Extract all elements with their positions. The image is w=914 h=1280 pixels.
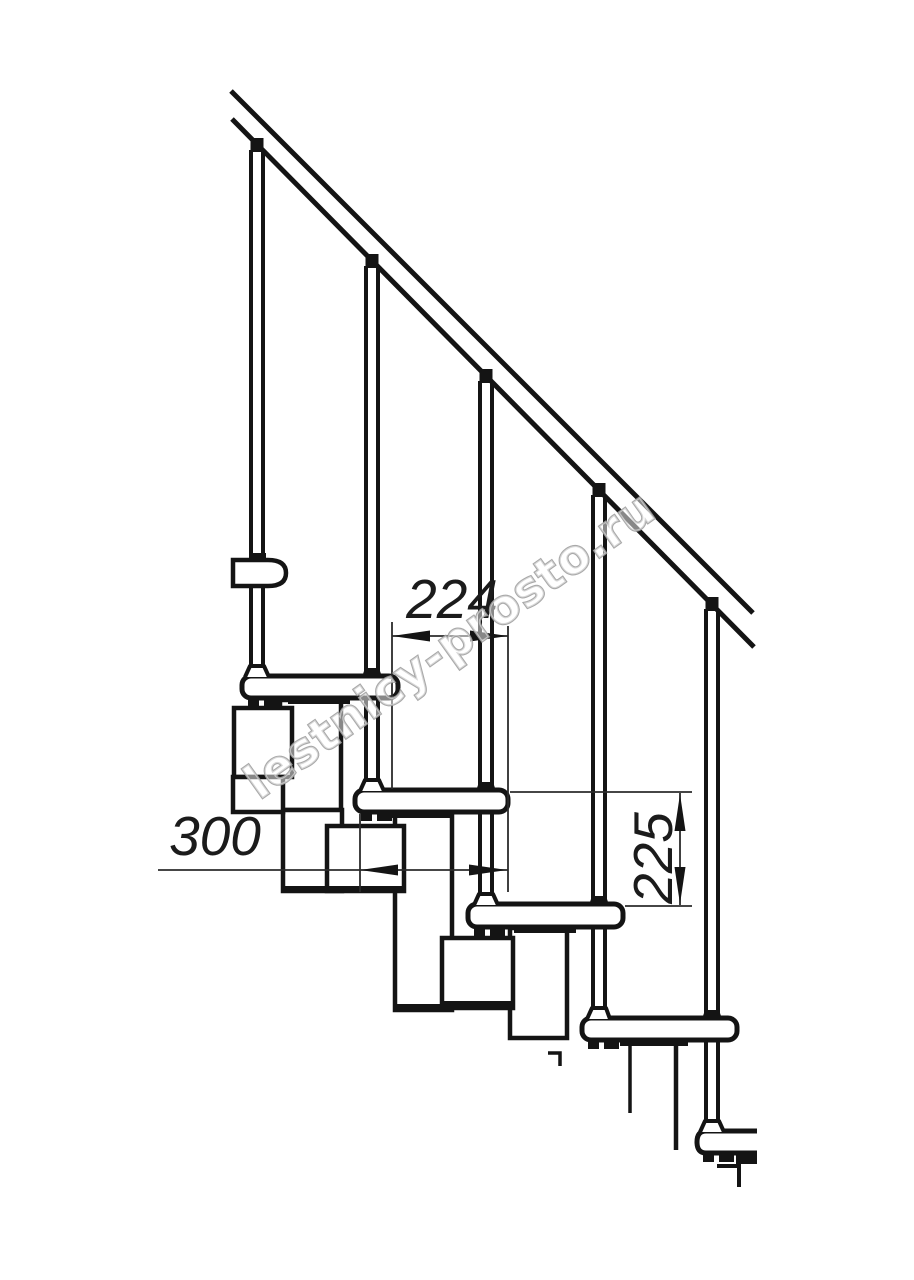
- baluster-1: [251, 138, 264, 668]
- clamp-tab: [361, 813, 372, 821]
- dimension-riser-height: 225: [510, 792, 692, 906]
- module-bridge-tread-3: [442, 938, 513, 1008]
- clamp-tab: [490, 928, 505, 936]
- baluster-2-rail-connector: [366, 254, 379, 268]
- pierce-collar-b5-t4: [702, 1010, 722, 1019]
- baluster-1-foot: [245, 666, 269, 677]
- module-bottom-band-4: [443, 1001, 512, 1008]
- module-hook-under-tread-3: [548, 1053, 560, 1066]
- collar-end-view-block: [249, 553, 266, 560]
- tread-underline: [514, 927, 576, 933]
- tread-4: [582, 1018, 737, 1040]
- module-under-tread-3-tall: [510, 928, 567, 1038]
- baluster-4-rail-connector: [593, 483, 606, 497]
- module-bridge-tread-2: [327, 826, 404, 891]
- tread-end-view-block: [233, 560, 286, 586]
- baluster-5-rail-connector: [706, 597, 719, 611]
- dimension-riser-height-value: 225: [622, 812, 684, 905]
- tread-2: [355, 790, 508, 812]
- baluster-1-rail-connector: [251, 138, 264, 152]
- tread-underline: [388, 812, 452, 818]
- clamp-tab: [264, 699, 279, 707]
- baluster-2-foot: [360, 780, 384, 791]
- clamp-tab: [588, 1041, 599, 1049]
- clamp-tab: [474, 928, 485, 936]
- baluster-4-foot: [587, 1008, 610, 1019]
- baluster-3-foot: [474, 894, 498, 905]
- baluster-5-foot: [700, 1121, 724, 1132]
- drawing-canvas: 224 300 225 lestnicy-prosto.ru: [0, 0, 914, 1280]
- pierce-collar-b4-t3: [589, 896, 609, 905]
- baluster-3-rail-connector: [480, 369, 493, 383]
- clamp-block: [736, 1155, 757, 1164]
- baluster-5: [706, 597, 719, 1123]
- tread-underline: [620, 1040, 688, 1046]
- tread-3: [468, 904, 623, 927]
- clamp-tab: [719, 1154, 734, 1162]
- clamp-tab: [604, 1041, 619, 1049]
- staircase-technical-drawing: 224 300 225 lestnicy-prosto.ru: [0, 0, 914, 1280]
- clamp-tab: [248, 699, 259, 707]
- tread-5-cropped: [697, 1131, 757, 1153]
- arrowhead-right: [469, 865, 507, 876]
- pierce-collar-b3-t2: [476, 782, 496, 791]
- dimension-tread-depth-value: 300: [169, 805, 261, 867]
- module-bottom-band-2: [328, 886, 403, 893]
- step-line-under-tread-5: [717, 1166, 739, 1187]
- watermark-text: lestnicy-prosto.ru: [234, 481, 665, 811]
- clamp-tab: [703, 1154, 714, 1162]
- module-bottom-band-3: [396, 1004, 451, 1011]
